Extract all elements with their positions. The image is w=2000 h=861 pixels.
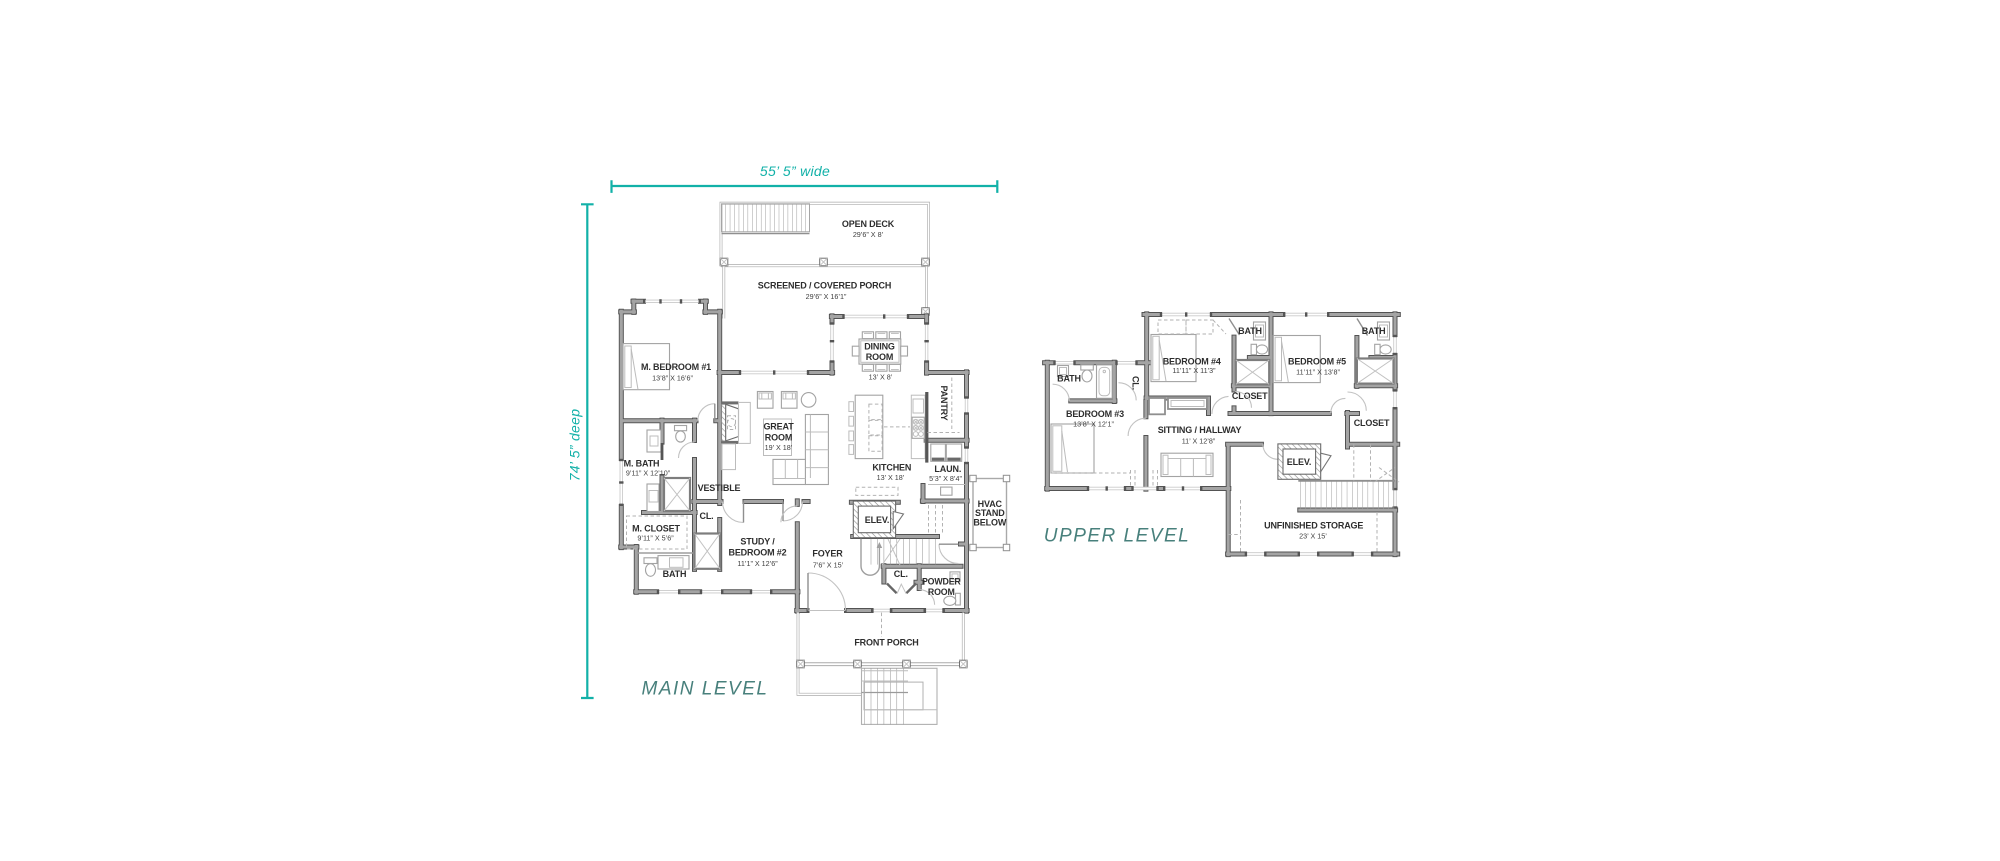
svg-text:POWDER: POWDER <box>922 577 961 587</box>
svg-text:CL.: CL. <box>894 569 908 579</box>
svg-text:9’11” X 5’6”: 9’11” X 5’6” <box>637 533 674 542</box>
svg-text:29’6” X 8’: 29’6” X 8’ <box>853 230 884 239</box>
svg-text:BEDROOM #4: BEDROOM #4 <box>1163 357 1221 367</box>
svg-text:BATH: BATH <box>1238 326 1262 336</box>
svg-text:9’11” X 12’10”: 9’11” X 12’10” <box>626 468 671 477</box>
svg-text:OPEN DECK: OPEN DECK <box>842 219 895 229</box>
svg-text:M. BEDROOM #1: M. BEDROOM #1 <box>641 362 711 372</box>
svg-text:11’11” X 11’3”: 11’11” X 11’3” <box>1172 366 1216 375</box>
svg-text:FOYER: FOYER <box>812 549 843 559</box>
svg-text:VESTIBLE: VESTIBLE <box>698 483 741 493</box>
svg-text:23’ X 15’: 23’ X 15’ <box>1299 532 1327 541</box>
svg-text:PANTRY: PANTRY <box>939 385 949 420</box>
svg-text:13’ X 18’: 13’ X 18’ <box>877 473 905 482</box>
svg-text:CL.: CL. <box>699 511 713 521</box>
svg-text:GREAT: GREAT <box>763 421 794 431</box>
svg-text:KITCHEN: KITCHEN <box>872 463 911 473</box>
svg-text:ROOM: ROOM <box>765 433 792 443</box>
svg-text:7’6” X 15’: 7’6” X 15’ <box>813 561 844 570</box>
svg-text:STUDY /: STUDY / <box>740 536 775 546</box>
svg-text:BEDROOM #5: BEDROOM #5 <box>1288 357 1346 367</box>
svg-text:74’ 5” deep: 74’ 5” deep <box>567 409 583 482</box>
svg-text:BEDROOM #3: BEDROOM #3 <box>1066 409 1124 419</box>
svg-text:BATH: BATH <box>663 569 687 579</box>
svg-text:13’8” X 12’1”: 13’8” X 12’1” <box>1073 420 1114 429</box>
svg-text:CL.: CL. <box>1131 376 1141 390</box>
svg-text:19’ X 18’: 19’ X 18’ <box>765 443 793 452</box>
svg-text:13’8” X 16’6”: 13’8” X 16’6” <box>652 373 693 382</box>
svg-text:55’ 5” wide: 55’ 5” wide <box>760 163 830 179</box>
svg-text:SITTING / HALLWAY: SITTING / HALLWAY <box>1158 425 1242 435</box>
svg-text:11’1” X 12’6”: 11’1” X 12’6” <box>737 559 778 568</box>
svg-text:UPPER LEVEL: UPPER LEVEL <box>1044 526 1190 547</box>
svg-text:SCREENED / COVERED PORCH: SCREENED / COVERED PORCH <box>758 281 891 291</box>
svg-text:MAIN LEVEL: MAIN LEVEL <box>642 679 769 700</box>
svg-text:M. CLOSET: M. CLOSET <box>632 524 680 534</box>
svg-text:DINING: DINING <box>864 342 895 352</box>
svg-text:M. BATH: M. BATH <box>624 459 660 469</box>
svg-text:11’11” X 13’8”: 11’11” X 13’8” <box>1296 368 1340 377</box>
svg-text:BEDROOM #2: BEDROOM #2 <box>728 548 786 558</box>
svg-text:5’3” X 8’4”: 5’3” X 8’4” <box>929 474 962 483</box>
svg-text:UNFINISHED STORAGE: UNFINISHED STORAGE <box>1264 521 1363 531</box>
svg-text:11’ X 12’8”: 11’ X 12’8” <box>1182 436 1216 445</box>
svg-text:BATH: BATH <box>1362 326 1386 336</box>
svg-text:BELOW: BELOW <box>973 518 1006 528</box>
svg-text:BATH: BATH <box>1057 373 1081 383</box>
svg-text:ROOM: ROOM <box>928 587 955 597</box>
svg-text:CLOSET: CLOSET <box>1354 418 1390 428</box>
svg-text:ELEV.: ELEV. <box>1287 457 1311 467</box>
svg-text:CLOSET: CLOSET <box>1232 391 1268 401</box>
svg-text:29’6” X 16’1”: 29’6” X 16’1” <box>806 292 847 301</box>
svg-text:ROOM: ROOM <box>866 352 893 362</box>
svg-text:ELEV.: ELEV. <box>865 515 889 525</box>
svg-text:LAUN.: LAUN. <box>934 464 961 474</box>
svg-text:13’ X 8’: 13’ X 8’ <box>869 373 893 382</box>
svg-text:FRONT PORCH: FRONT PORCH <box>854 637 918 647</box>
